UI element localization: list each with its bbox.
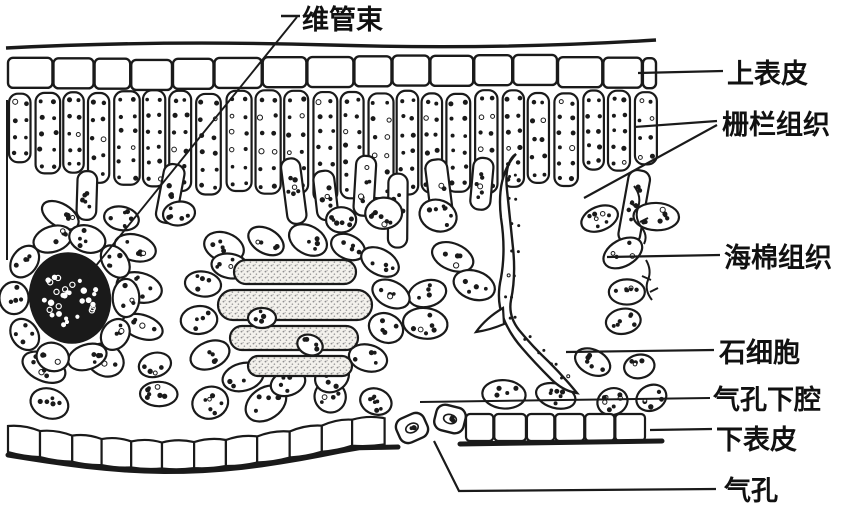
lower-epidermis-cells <box>8 414 662 472</box>
label-lower-epidermis: 下表皮 <box>716 425 797 455</box>
label-stoma: 气孔 <box>723 476 778 506</box>
leader-stoma <box>434 441 716 491</box>
leaf-diagram-canvas: 维管束 上表皮 栅栏组织 海棉组织 石细胞 气孔下腔 下表皮 气孔 <box>0 0 851 512</box>
label-palisade-tissue: 栅栏组织 <box>722 109 830 140</box>
label-vascular-bundle: 维管束 <box>302 5 383 35</box>
midvein-structure <box>180 218 415 401</box>
leader-lower-epidermis <box>650 429 712 430</box>
label-substomatal-cavity: 气孔下腔 <box>712 385 821 415</box>
leaf-cross-section-figure: 维管束 上表皮 栅栏组织 海棉组织 石细胞 气孔下腔 下表皮 气孔 <box>0 0 851 512</box>
upper-epidermis-cells <box>8 55 656 90</box>
stoma-guard-cells <box>393 403 468 446</box>
upper-cuticle-line <box>6 40 656 48</box>
label-upper-epidermis: 上表皮 <box>727 59 808 89</box>
label-stone-cell: 石细胞 <box>718 337 800 368</box>
label-spongy-tissue: 海棉组织 <box>724 242 832 273</box>
